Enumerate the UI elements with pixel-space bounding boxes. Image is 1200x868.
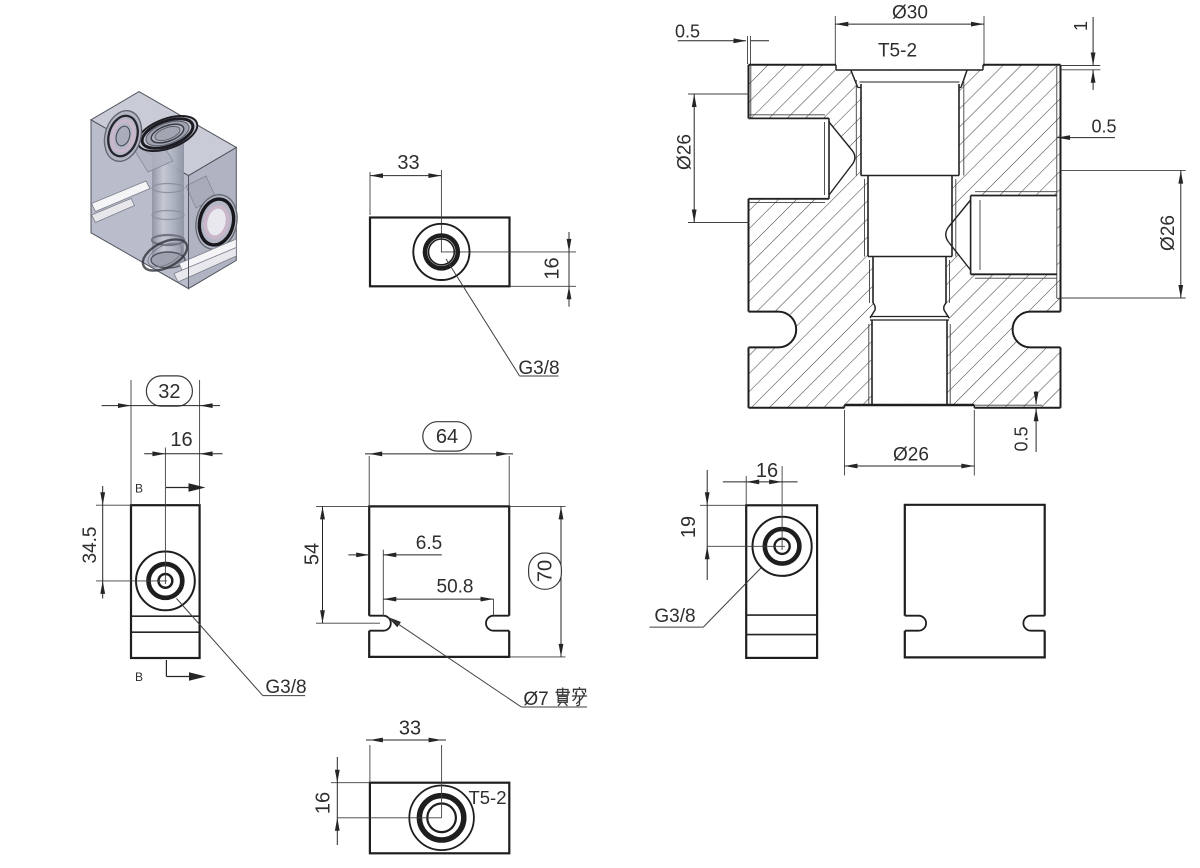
- svg-text:Ø26: Ø26: [674, 134, 695, 170]
- svg-text:T5-2: T5-2: [878, 40, 917, 61]
- svg-text:T5-2: T5-2: [468, 787, 506, 808]
- svg-text:Ø30: Ø30: [892, 2, 928, 23]
- svg-text:54: 54: [302, 543, 324, 565]
- svg-text:33: 33: [397, 152, 419, 174]
- svg-text:Ø7: Ø7: [523, 689, 548, 710]
- svg-text:0.5: 0.5: [675, 22, 700, 42]
- svg-text:16: 16: [313, 792, 335, 814]
- svg-text:16: 16: [170, 429, 192, 451]
- svg-text:6.5: 6.5: [416, 533, 442, 554]
- svg-text:G3/8: G3/8: [518, 358, 559, 379]
- svg-text:33: 33: [399, 718, 421, 740]
- svg-text:0.5: 0.5: [1012, 426, 1032, 451]
- svg-text:64: 64: [436, 426, 458, 448]
- svg-text:50.8: 50.8: [437, 576, 474, 597]
- svg-text:G3/8: G3/8: [265, 677, 306, 698]
- svg-text:19: 19: [678, 516, 700, 538]
- svg-text:70: 70: [535, 560, 557, 582]
- svg-text:34.5: 34.5: [80, 527, 101, 564]
- svg-text:0.5: 0.5: [1091, 117, 1116, 137]
- svg-text:G3/8: G3/8: [654, 606, 695, 627]
- svg-text:16: 16: [756, 460, 778, 482]
- svg-text:16: 16: [542, 257, 564, 279]
- svg-text:32: 32: [158, 381, 180, 403]
- svg-text:1: 1: [1071, 21, 1091, 31]
- svg-text:B: B: [135, 670, 143, 684]
- svg-text:Ø26: Ø26: [1158, 215, 1179, 251]
- svg-text:Ø26: Ø26: [893, 444, 929, 465]
- svg-text:B: B: [135, 481, 143, 495]
